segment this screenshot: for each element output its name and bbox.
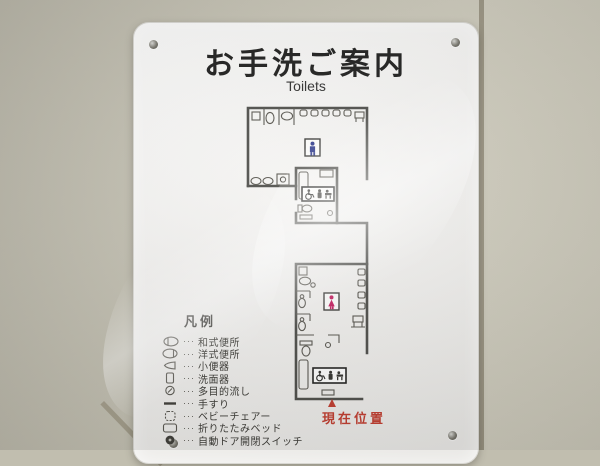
tile-grout-vertical: [479, 0, 484, 450]
tiled-wall: お手洗ご案内 Toilets: [0, 0, 600, 450]
sign-subtitle-english: Toilets: [134, 78, 478, 94]
multipurpose-sink-icon: [150, 385, 180, 396]
mens-toilet-stalls: [252, 108, 294, 125]
urinal-icon: [150, 360, 180, 371]
legend-row: ··· 小便器: [150, 360, 340, 372]
legend-row: ··· 洋式便所: [150, 347, 340, 359]
auto-door-switch-icon: [328, 211, 333, 216]
toilet-guide-sign-panel: お手洗ご案内 Toilets: [133, 22, 479, 464]
western-toilet-icon: [299, 298, 306, 307]
legend: 凡例 ··· 和式便所 ··· 洋式便所 ··· 小便器: [150, 311, 340, 447]
urinal-icon: [322, 110, 329, 116]
western-toilet-icon: [266, 112, 274, 123]
folding-bed-icon: [150, 422, 180, 434]
washbasin-icon: [358, 269, 365, 275]
photo-toilet-sign: { "panel": { "title": "お手洗ご案内", "subtitl…: [0, 0, 600, 450]
womens-washbasins: [351, 269, 365, 327]
western-toilet-icon: [281, 112, 292, 120]
mens-pictogram: [305, 139, 320, 156]
squat-toilet-icon: [252, 112, 260, 120]
handrail-icon: [150, 398, 180, 409]
sign-title: お手洗ご案内: [134, 39, 478, 83]
washbasin-icon: [150, 372, 180, 384]
screw-bottom-right: [448, 431, 457, 440]
washbasin-icon: [263, 178, 273, 185]
male-figure-icon: [311, 142, 315, 146]
washbasin-icon: [358, 292, 365, 298]
womens-pictogram: [324, 293, 339, 310]
washbasin-icon: [358, 303, 365, 309]
female-figure-icon: [330, 295, 334, 299]
mens-washbasins: [251, 174, 289, 185]
baby-chair-icon: [150, 410, 180, 422]
legend-row: ··· 自動ドア開閉スイッチ: [150, 434, 340, 446]
bench: [300, 215, 312, 219]
multipurpose-sink-icon: [277, 174, 289, 185]
urinal-icon: [344, 110, 351, 116]
western-toilet-icon: [299, 277, 310, 285]
squat-toilet-icon: [150, 336, 180, 347]
shelf: [320, 170, 333, 177]
auto-door-switch-icon: [150, 434, 180, 446]
toilet-tank: [298, 205, 302, 212]
urinal-icon: [333, 110, 340, 116]
mens-corner-stand: [355, 112, 364, 122]
urinal-icon: [311, 110, 318, 116]
urinal-row: [300, 110, 351, 116]
western-toilet-icon: [150, 348, 180, 359]
baby-chair-icon: [318, 189, 322, 198]
washbasin-icon: [358, 280, 365, 286]
multipurpose-room-1-fixtures: [298, 170, 334, 219]
corridor-walls: [337, 223, 367, 264]
legend-row: ··· 和式便所: [150, 335, 340, 347]
legend-row: ··· 多目的流し: [150, 385, 340, 397]
urinal-icon: [300, 110, 307, 116]
stand: [353, 316, 363, 322]
washbasin-icon: [251, 178, 261, 185]
legend-heading: 凡例: [184, 311, 340, 330]
western-toilet-icon: [302, 205, 312, 212]
